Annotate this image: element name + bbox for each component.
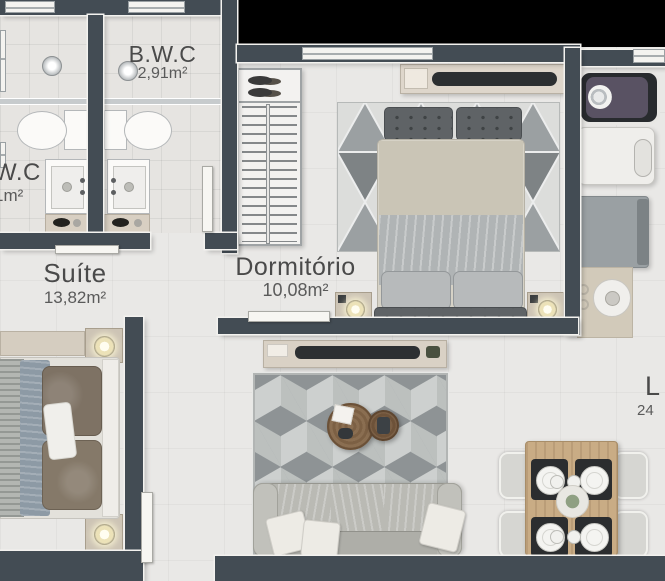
suite-headboard xyxy=(102,359,119,517)
wc-shower-glass xyxy=(0,98,88,105)
suite-area: 13,82m² xyxy=(15,289,135,307)
dorm-bed-bench-cushion-1 xyxy=(384,107,453,141)
dorm-bed-duvet xyxy=(379,141,523,215)
wc-soap-dish xyxy=(53,218,70,227)
bwc-soap-dish xyxy=(112,218,129,227)
bwc-cup xyxy=(134,219,142,227)
laundry-tank-handle xyxy=(634,139,652,177)
dormitorio-name: Dormitório xyxy=(228,254,363,280)
service-sink-drain xyxy=(605,291,620,306)
dorm-lamp-1-icon xyxy=(346,300,365,319)
service-cabinet-edge xyxy=(637,199,649,265)
closet-shoe-2 xyxy=(248,88,272,97)
suite-lamp-2-icon xyxy=(94,524,115,545)
wc-toilet-bowl xyxy=(17,111,67,150)
bwc-area: 2,91m² xyxy=(103,66,222,83)
glass-3 xyxy=(550,530,564,544)
room-label-wc: W.C 1m² xyxy=(0,160,54,205)
dining-chair-4 xyxy=(613,511,648,558)
living-name: L xyxy=(645,372,665,400)
coffee-table-small-item xyxy=(377,417,390,434)
closet-rod xyxy=(266,104,270,244)
wall-living-south xyxy=(215,556,665,581)
wall-bwc-right xyxy=(222,0,237,253)
bwc-faucet-2 xyxy=(111,190,116,195)
room-label-suite: Suíte 13,82m² xyxy=(15,260,135,307)
outside-area-top xyxy=(233,0,665,47)
dorm-tv-icon xyxy=(432,72,557,86)
door-dormitorio xyxy=(248,311,330,322)
room-label-living-area: 24 xyxy=(637,403,665,419)
suite-lamp-1-icon xyxy=(94,336,115,357)
dining-centerpiece xyxy=(556,485,589,518)
wall-hall-stub xyxy=(205,233,237,249)
suite-name: Suíte xyxy=(15,260,135,287)
wc-area: 1m² xyxy=(0,187,54,205)
floor-plan: B.W.C 2,91m² W.C 1m² Suíte 13,82m² Dormi… xyxy=(0,0,665,581)
dining-chair-3 xyxy=(613,452,648,499)
wc-name: W.C xyxy=(0,160,54,185)
glass-4 xyxy=(567,530,581,544)
room-label-living: L xyxy=(645,372,665,400)
dorm-nightstand-2-item xyxy=(530,295,538,303)
suite-console xyxy=(0,331,85,356)
window-dormitorio xyxy=(302,47,433,60)
dormitorio-area: 10,08m² xyxy=(228,281,363,300)
bwc-name: B.W.C xyxy=(103,42,222,66)
bwc-faucet xyxy=(111,178,116,183)
bwc-toilet-bowl xyxy=(124,111,172,150)
window-service xyxy=(633,49,665,63)
dorm-bed-pillow-1 xyxy=(381,271,451,310)
bwc-shower-glass xyxy=(103,98,222,105)
room-label-bwc: B.W.C 2,91m² xyxy=(103,42,222,83)
window-bwc-top xyxy=(128,1,185,13)
room-label-dormitorio: Dormitório 10,08m² xyxy=(228,254,363,300)
sofa-pillow-2 xyxy=(300,519,341,560)
door-bwc xyxy=(202,166,213,232)
dorm-rack-item xyxy=(404,68,428,89)
dorm-bed-pillow-2 xyxy=(453,271,523,310)
closet-shoe-1 xyxy=(248,76,272,85)
wc-sink-drain xyxy=(62,182,72,192)
wc-toilet-cistern xyxy=(64,110,88,150)
bwc-sink-drain xyxy=(124,182,134,192)
dorm-bed-bench-cushion-2 xyxy=(456,107,522,141)
living-area: 24 xyxy=(637,403,665,419)
door-suite xyxy=(141,492,153,563)
glass-1 xyxy=(550,475,564,489)
window-left-edge-1 xyxy=(0,30,6,92)
wall-bath-divider xyxy=(88,15,103,233)
wc-shower-head-icon xyxy=(42,56,62,76)
living-tv-icon xyxy=(295,346,420,359)
living-rack-item-left xyxy=(267,344,288,357)
door-wc xyxy=(55,245,119,254)
wall-suite-south xyxy=(0,551,143,581)
washing-machine-door-icon xyxy=(588,85,612,109)
wc-faucet xyxy=(80,178,85,183)
wc-faucet-2 xyxy=(80,190,85,195)
closet-shelf-divider xyxy=(239,101,300,103)
dorm-lamp-2-icon xyxy=(538,300,557,319)
coffee-table-cups xyxy=(338,428,353,439)
plate-4 xyxy=(580,523,609,552)
living-rack-item-right xyxy=(426,346,440,358)
window-wc-top xyxy=(5,1,55,13)
wall-service-west xyxy=(565,48,580,335)
wc-cup xyxy=(73,219,81,227)
